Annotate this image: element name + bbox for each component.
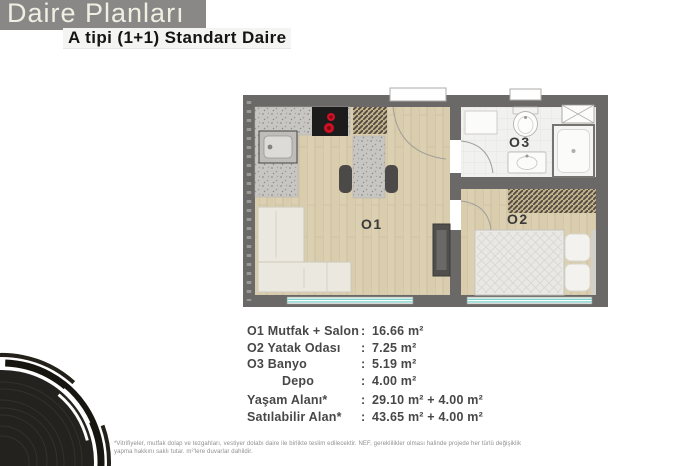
totals-label: Yaşam Alanı*	[247, 392, 361, 409]
room-label-o2: O2	[507, 211, 529, 227]
shower-drain	[572, 149, 576, 153]
totals-row: Satılabilir Alan* : 43.65 m² + 4.00 m²	[247, 409, 537, 426]
legend-value: 16.66 m²	[372, 323, 424, 340]
entrance-door	[390, 88, 446, 101]
totals-value: 43.65 m² + 4.00 m²	[372, 409, 483, 426]
totals-value: 29.10 m² + 4.00 m²	[372, 392, 483, 409]
ink-scribble-decoration	[0, 330, 170, 466]
totals-label: Satılabilir Alan*	[247, 409, 361, 426]
legend-row: O3 Banyo : 5.19 m²	[247, 356, 537, 373]
plan-subtitle: A tipi (1+1) Standart Daire	[63, 28, 291, 49]
totals-row: Yaşam Alanı* : 29.10 m² + 4.00 m²	[247, 392, 537, 409]
legend-row: O1 Mutfak + Salon : 16.66 m²	[247, 323, 537, 340]
disclaimer-line: *Vitrifiyeler, mutfak dolap ve tezgahlar…	[114, 441, 698, 449]
page-title: Daire Planları	[7, 0, 185, 29]
legend-row: Depo : 4.00 m²	[247, 373, 537, 390]
bathroom-window	[510, 89, 541, 100]
chair	[339, 165, 352, 193]
legend-row: O2 Yatak Odası : 7.25 m²	[247, 340, 537, 357]
headboard	[591, 230, 596, 295]
room-label-o3: O3	[509, 134, 531, 150]
faucet	[268, 145, 273, 150]
living-room-window	[287, 297, 413, 304]
chair	[385, 165, 398, 193]
legend-label: O2 Yatak Odası	[247, 340, 361, 357]
page-title-banner: Daire Planları	[0, 0, 206, 30]
bedroom-window	[467, 297, 592, 304]
room-label-o1: O1	[361, 216, 383, 232]
legend-value: 5.19 m²	[372, 356, 416, 373]
legend-value: 7.25 m²	[372, 340, 416, 357]
legend-label: O1 Mutfak + Salon	[247, 323, 361, 340]
pillow	[565, 264, 590, 291]
floor-plan: O1 O2 O3	[243, 85, 608, 307]
disclaimer-footnote: *Vitrifiyeler, mutfak dolap ve tezgahlar…	[114, 441, 698, 456]
area-legend: O1 Mutfak + Salon : 16.66 m² O2 Yatak Od…	[247, 323, 537, 389]
bedroom-door-opening	[450, 200, 461, 230]
interior-wall-horizontal	[461, 177, 596, 189]
dining-table	[353, 136, 385, 198]
toilet	[514, 112, 538, 137]
legend-value: 4.00 m²	[372, 373, 416, 390]
bathroom-door-opening	[450, 140, 461, 173]
legend-label: Depo	[247, 373, 361, 390]
area-totals: Yaşam Alanı* : 29.10 m² + 4.00 m² Satıla…	[247, 392, 537, 425]
washer-cabinet	[465, 111, 497, 134]
legend-label: O3 Banyo	[247, 356, 361, 373]
pillow	[565, 234, 590, 261]
disclaimer-line: yapma hakkını saklı tutar. m²'lere duvar…	[114, 449, 698, 457]
